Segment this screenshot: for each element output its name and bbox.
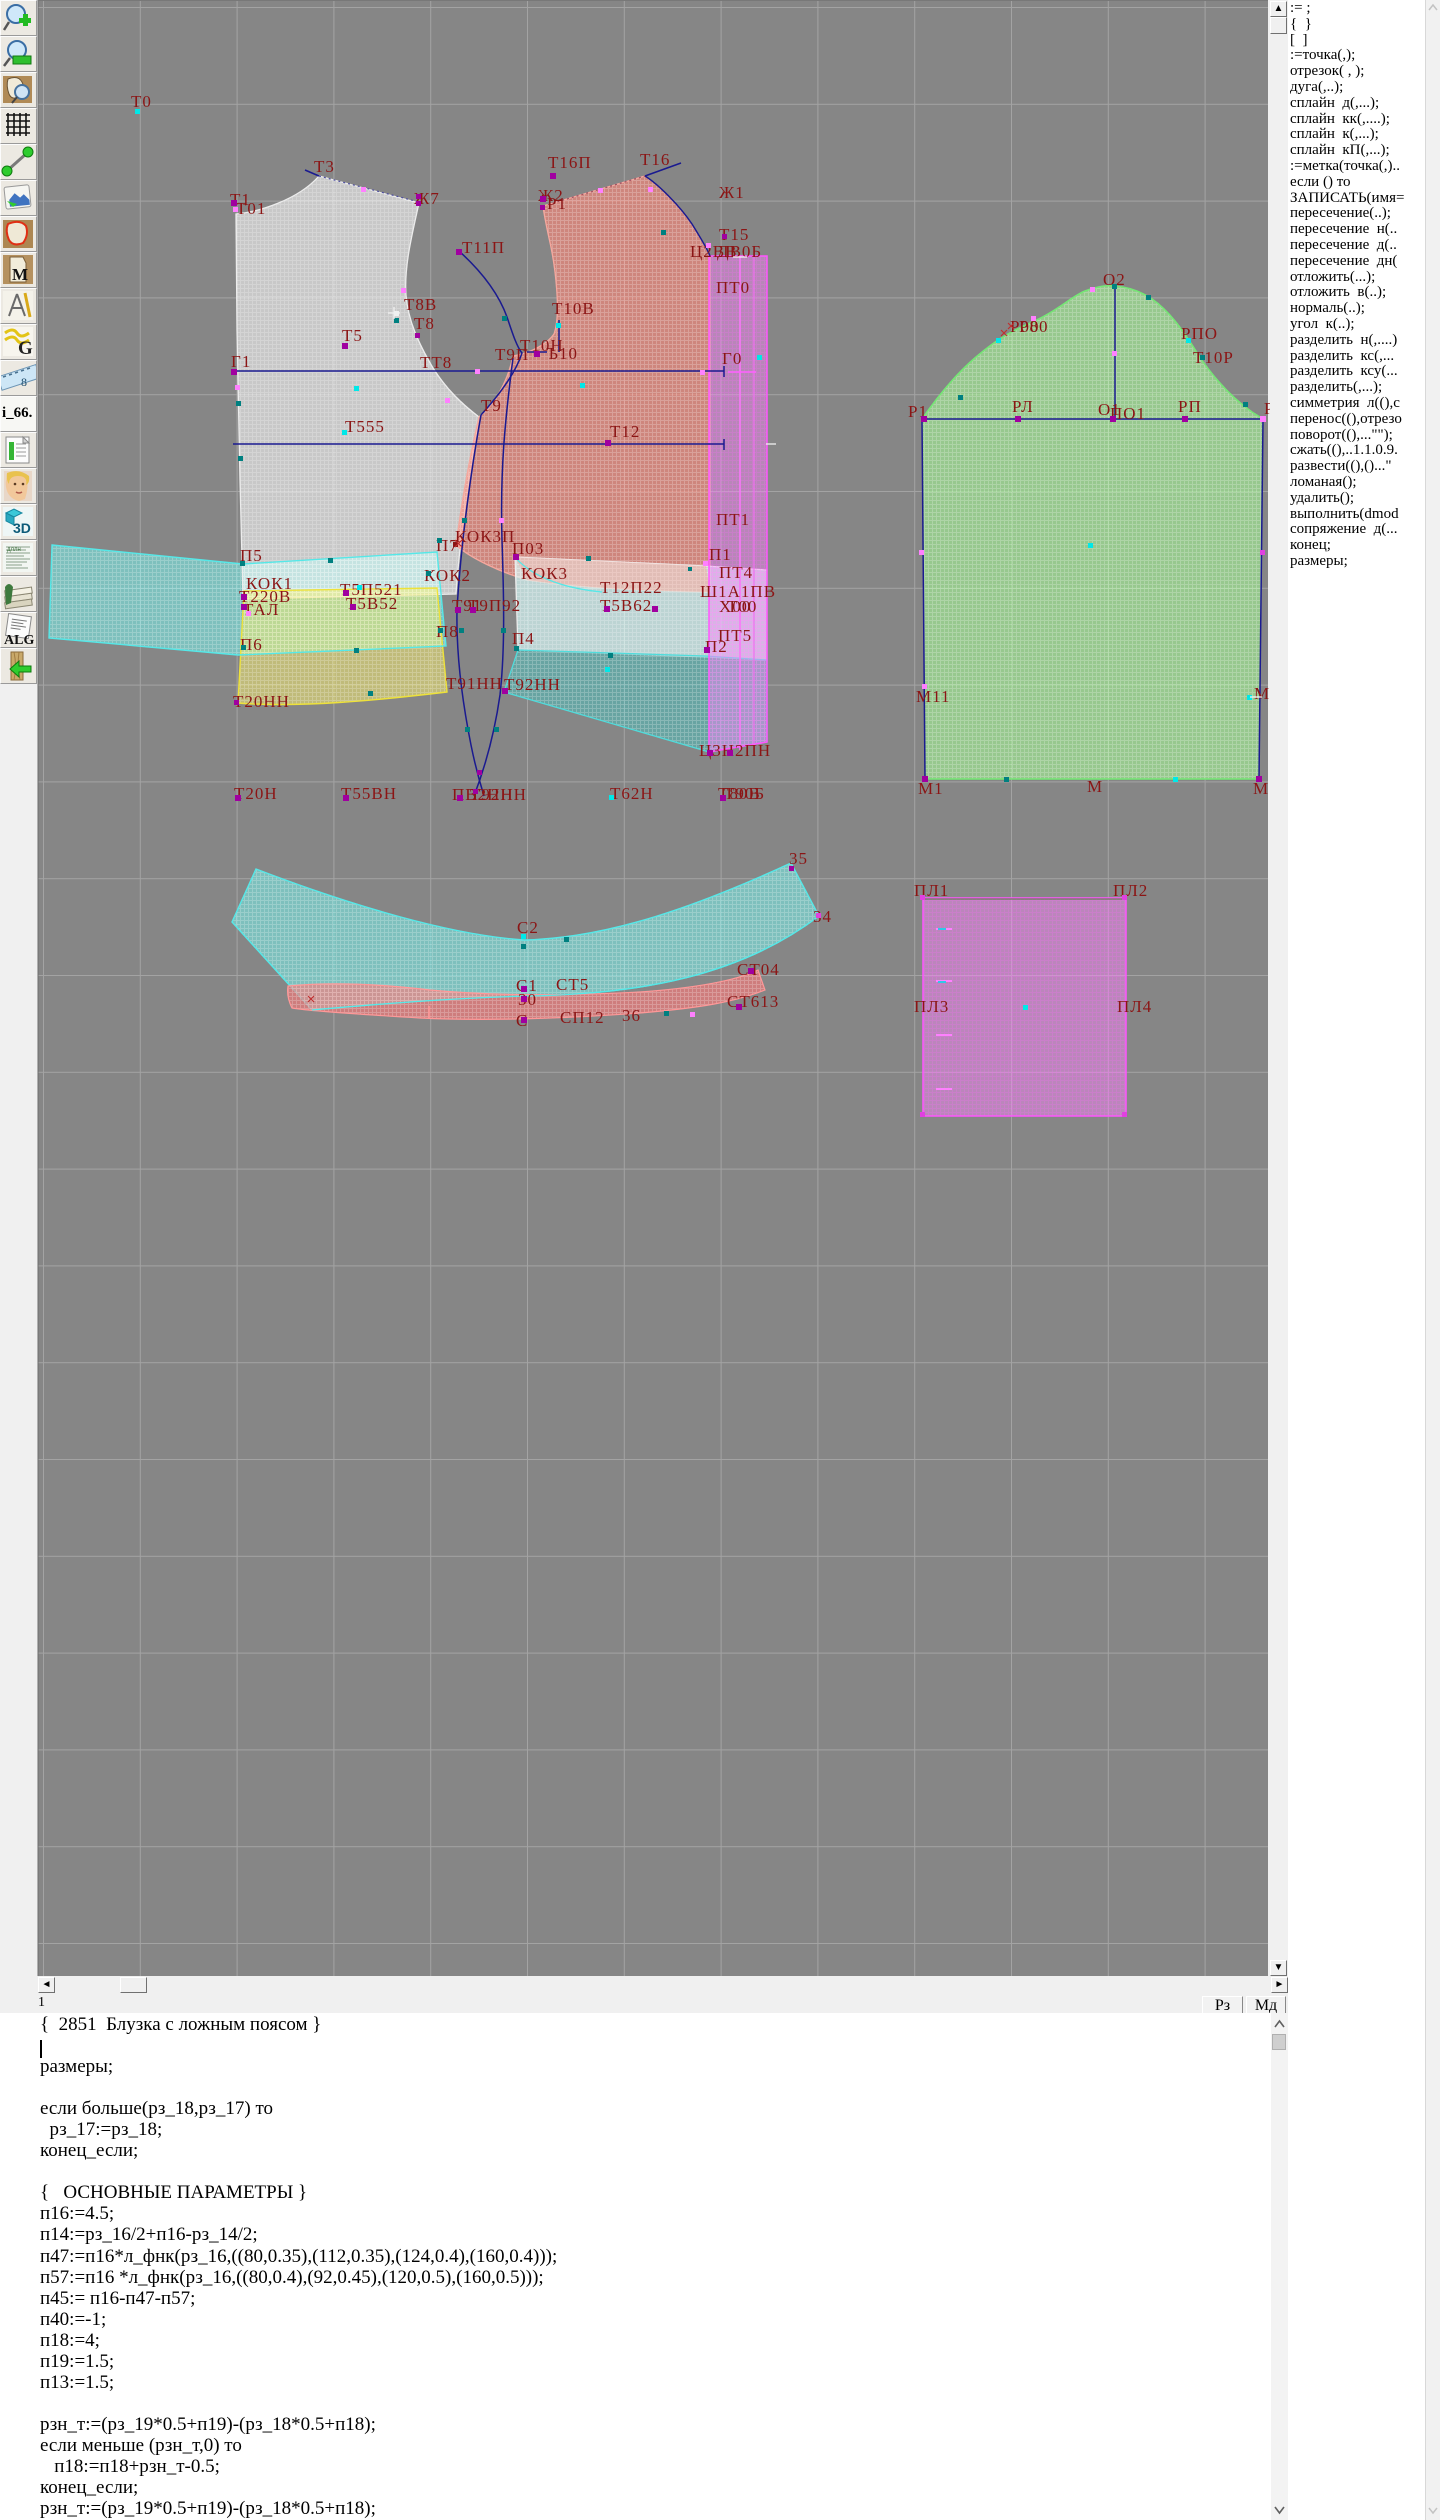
svg-text:Т91НН: Т91НН xyxy=(446,674,503,693)
svg-text:Т0: Т0 xyxy=(131,92,152,111)
svg-text:ПЛ1: ПЛ1 xyxy=(914,881,949,900)
svg-text:ДВ0Б: ДВ0Б xyxy=(717,242,762,261)
svg-text:Г1: Г1 xyxy=(231,352,251,371)
svg-text:Т10Р: Т10Р xyxy=(1193,348,1234,367)
svg-text:Р1: Р1 xyxy=(547,194,567,213)
svg-text:Т16П: Т16П xyxy=(548,153,592,172)
svg-text:Т10В: Т10В xyxy=(552,299,595,318)
svg-text:Т8: Т8 xyxy=(414,314,435,333)
svg-text:СП12: СП12 xyxy=(560,1008,605,1027)
svg-text:ПЛ3: ПЛ3 xyxy=(914,997,949,1016)
svg-text:П6: П6 xyxy=(240,635,263,654)
svg-text:М: М xyxy=(1087,777,1103,796)
svg-text:РП: РП xyxy=(1178,397,1202,416)
svg-text:Ж1: Ж1 xyxy=(719,183,745,202)
svg-text:Т8В: Т8В xyxy=(404,295,437,314)
svg-text:G: G xyxy=(18,338,33,359)
svg-text:КОК2: КОК2 xyxy=(424,566,471,585)
svg-text:СТ613: СТ613 xyxy=(727,992,779,1011)
svg-text:СТ5: СТ5 xyxy=(556,975,589,994)
svg-text:ПТ4: ПТ4 xyxy=(719,563,753,582)
svg-text:П4: П4 xyxy=(512,629,535,648)
svg-text:Ъ10: Ъ10 xyxy=(546,344,578,363)
svg-text:С2: С2 xyxy=(517,918,539,937)
svg-text:8: 8 xyxy=(21,375,27,389)
svg-text:Т20НН: Т20НН xyxy=(233,692,290,711)
svg-text:ПТ1: ПТ1 xyxy=(716,510,750,529)
svg-text:Т16: Т16 xyxy=(640,150,670,169)
svg-text:П2: П2 xyxy=(705,637,728,656)
svg-text:Т11П: Т11П xyxy=(462,238,505,257)
svg-text:35: 35 xyxy=(789,849,808,868)
svg-text:РЛ: РЛ xyxy=(1012,397,1034,416)
svg-text:Т92НН: Т92НН xyxy=(470,785,527,804)
svg-text:Т01: Т01 xyxy=(236,199,266,218)
svg-text:Т5В52: Т5В52 xyxy=(346,594,398,613)
svg-text:ПЛ4: ПЛ4 xyxy=(1117,997,1152,1016)
svg-text:Т90Б: Т90Б xyxy=(724,784,765,803)
svg-text:М11: М11 xyxy=(916,687,951,706)
svg-text:30: 30 xyxy=(518,990,537,1009)
svg-text:3D: 3D xyxy=(13,520,31,536)
svg-text:Т92НН: Т92НН xyxy=(504,675,561,694)
svg-text:Т9: Т9 xyxy=(481,396,502,415)
svg-text:дллн: дллн xyxy=(7,547,21,553)
svg-text:Т00: Т00 xyxy=(727,597,757,616)
svg-text:ПЛ2: ПЛ2 xyxy=(1113,881,1148,900)
svg-text:КОК3П: КОК3П xyxy=(455,527,515,546)
svg-text:ALG: ALG xyxy=(4,633,34,647)
svg-text:КОК3: КОК3 xyxy=(521,564,568,583)
svg-text:M: M xyxy=(12,265,28,284)
svg-text:Т3: Т3 xyxy=(314,157,335,176)
svg-text:Т5В62: Т5В62 xyxy=(600,596,652,615)
svg-text:Т555: Т555 xyxy=(345,417,385,436)
svg-text:М: М xyxy=(1254,684,1270,703)
svg-text:Т62Н: Т62Н xyxy=(610,784,654,803)
svg-text:Т12П22: Т12П22 xyxy=(600,578,663,597)
svg-text:ТАЛ: ТАЛ xyxy=(243,600,279,619)
svg-text:ТТ8: ТТ8 xyxy=(420,353,452,372)
svg-text:Т55ВН: Т55ВН xyxy=(341,784,397,803)
svg-text:Т12: Т12 xyxy=(610,422,640,441)
svg-text:Г0: Г0 xyxy=(722,349,742,368)
svg-text:П1: П1 xyxy=(709,545,732,564)
svg-text:М1: М1 xyxy=(918,779,944,798)
svg-text:СТ04: СТ04 xyxy=(737,960,780,979)
svg-text:Т5: Т5 xyxy=(342,326,363,345)
svg-text:34: 34 xyxy=(813,907,832,926)
svg-text:36: 36 xyxy=(622,1006,641,1025)
svg-text:ПТ0: ПТ0 xyxy=(716,278,750,297)
